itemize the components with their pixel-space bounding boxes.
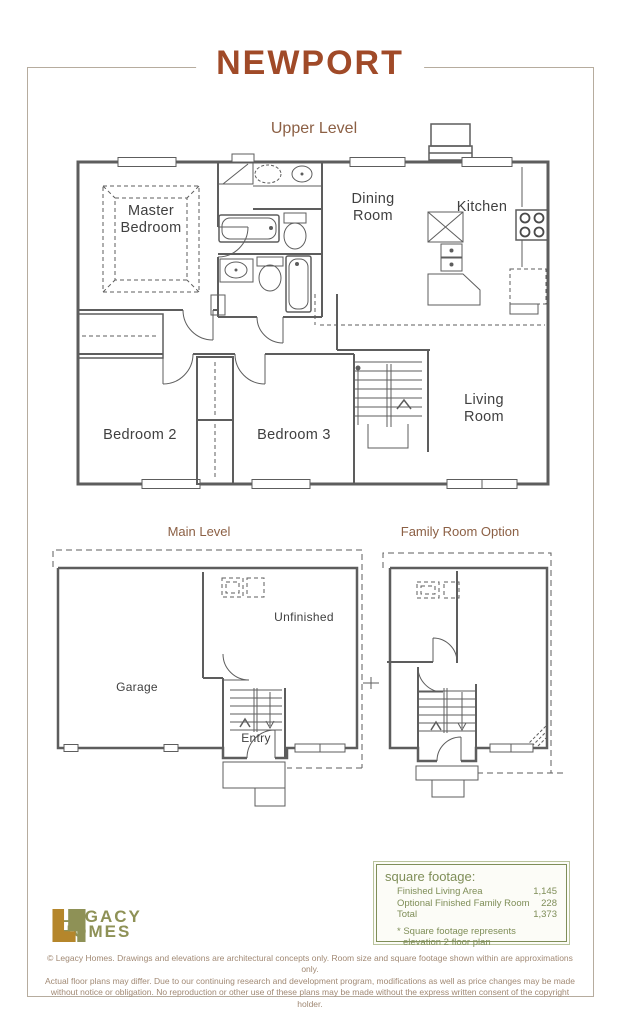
up-arrow — [397, 400, 411, 409]
bedroom3-label: Bedroom 3 — [257, 427, 331, 443]
upper-level-floor-plan: Master Bedroom Dining Room Kitchen Bedro… — [70, 112, 560, 497]
bathroom-fixtures — [218, 162, 322, 312]
door-arcs — [163, 227, 283, 384]
square-footage-box: square footage: 1,145 Finished Living Ar… — [373, 861, 570, 945]
garage-label: Garage — [116, 680, 158, 694]
stairs — [355, 362, 422, 448]
interior-walls — [387, 571, 476, 761]
furnace-area — [417, 582, 459, 598]
room-labels: Garage Unfinished Entry — [116, 610, 334, 745]
down-arrow — [266, 692, 274, 728]
openings — [490, 744, 533, 752]
svg-text:Room: Room — [464, 409, 504, 425]
disclaimer-line2: Actual floor plans may differ. Due to ou… — [40, 976, 580, 987]
stove — [516, 210, 548, 240]
exterior-walls — [390, 568, 547, 761]
master-bed — [103, 186, 199, 292]
kitchen-fixtures — [428, 167, 548, 314]
stoop — [416, 766, 478, 797]
toilet — [284, 223, 306, 249]
dining-room-label: Dining — [352, 191, 395, 207]
sqft-row-finished-living: 1,145 Finished Living Area — [397, 886, 557, 898]
kitchen-label: Kitchen — [457, 199, 507, 215]
sink — [255, 165, 281, 183]
master-door — [183, 310, 213, 340]
roof-outline — [53, 550, 362, 768]
refrigerator — [510, 269, 546, 304]
landing — [368, 424, 408, 448]
disclaimer-line1: © Legacy Homes. Drawings and elevations … — [40, 953, 580, 976]
svg-text:Room: Room — [353, 208, 393, 224]
main-level-label: Main Level — [168, 524, 231, 539]
bedroom2-label: Bedroom 2 — [103, 427, 177, 443]
family-room-option-label: Family Room Option — [401, 524, 519, 539]
stairs — [418, 688, 476, 733]
garage-door-mark — [64, 745, 78, 752]
page-title: NEWPORT — [196, 44, 424, 83]
sqft-row-family-room: 228 Optional Finished Family Room — [397, 898, 557, 910]
up-arrow — [240, 719, 250, 727]
brochure-page: NEWPORT Upper Level — [0, 0, 620, 1024]
garage-door-mark — [164, 745, 178, 752]
bedroom2-door — [163, 354, 193, 384]
sqft-note: * Square footage represents — [397, 926, 566, 937]
copyright-disclaimer: © Legacy Homes. Drawings and elevations … — [40, 953, 580, 1010]
legacy-homes-logo: LEGACY HOMES — [50, 906, 142, 939]
legacy-homes-logo-icon — [50, 906, 88, 945]
bedroom3-door — [235, 354, 265, 384]
exterior-walls — [58, 568, 357, 758]
bath-door — [257, 317, 283, 343]
furnace-area — [222, 578, 264, 597]
down-arrow — [458, 692, 466, 730]
toilet — [259, 265, 281, 291]
disclaimer-line3: without notice or obligation. No reprodu… — [40, 987, 580, 1010]
entry-label: Entry — [241, 731, 271, 745]
fireplace — [526, 726, 546, 746]
front-door — [437, 737, 461, 761]
stoop — [223, 762, 285, 806]
family-room-option-floor-plan — [378, 540, 568, 830]
main-level-floor-plan: Garage Unfinished Entry — [40, 540, 370, 830]
entry-interior-door — [223, 654, 249, 680]
storage-room-door — [433, 638, 457, 662]
stairs — [230, 688, 282, 732]
linen-closet — [218, 162, 253, 184]
hall-closets — [78, 295, 233, 484]
toilet-tank — [284, 213, 306, 223]
unfinished-label: Unfinished — [274, 610, 334, 624]
sqft-row-total: 1,373 Total — [397, 909, 557, 921]
svg-text:Bedroom: Bedroom — [121, 220, 182, 236]
dimension-tick — [362, 674, 380, 692]
living-room-label: Living — [464, 392, 504, 408]
chimney — [429, 124, 472, 160]
master-bedroom-label: Master — [128, 203, 174, 219]
corner-counter — [428, 274, 480, 305]
square-footage-heading: square footage: — [385, 869, 566, 884]
entry-interior-door — [418, 667, 443, 692]
